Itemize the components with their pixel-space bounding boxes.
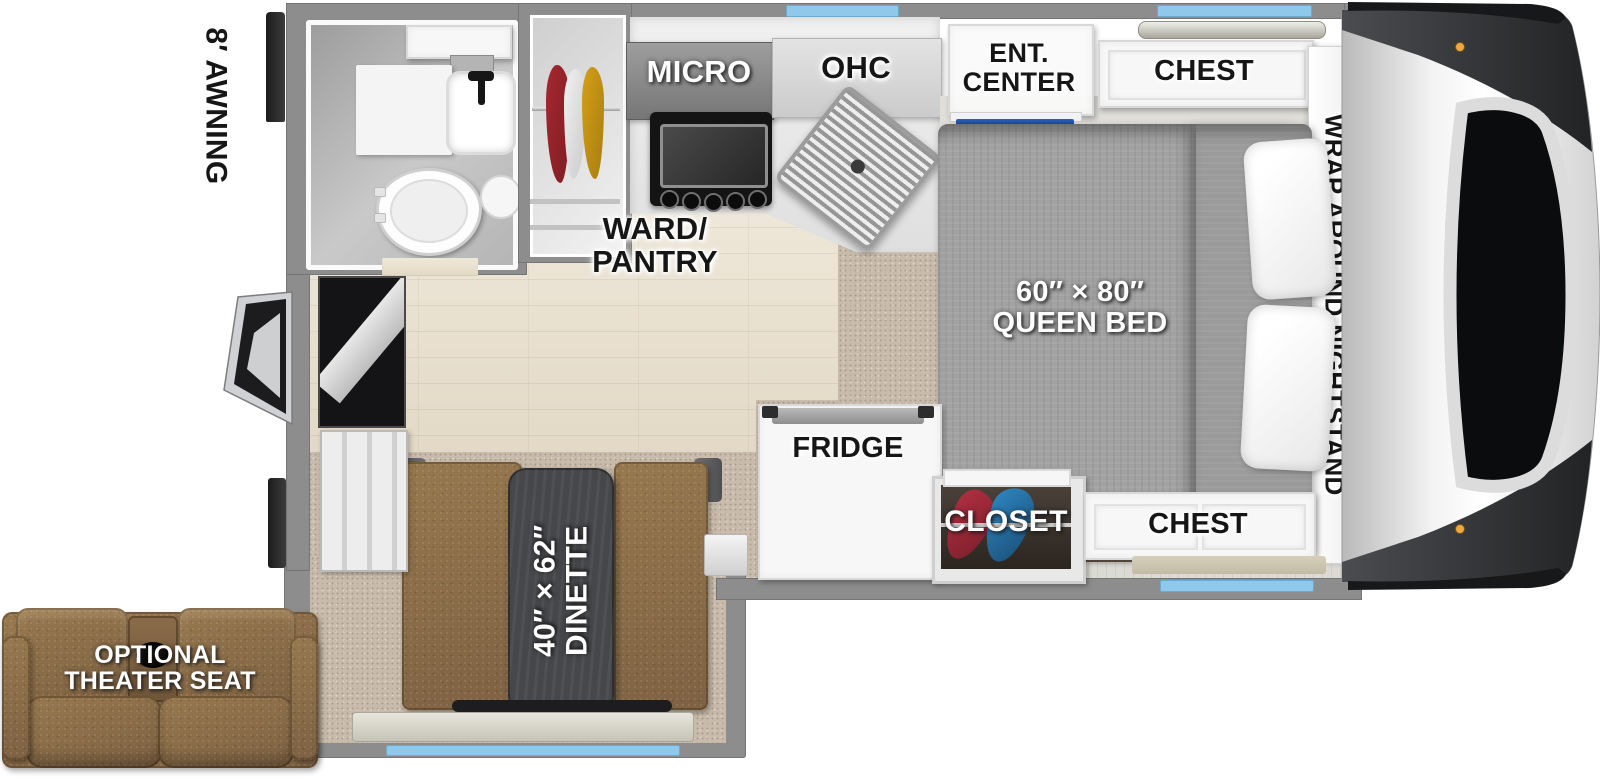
clearance-light-icon — [1456, 43, 1465, 52]
stove-knob-icon — [748, 190, 767, 209]
ent-center-label: ENT. CENTER — [944, 28, 1094, 108]
entry-door-panel — [320, 430, 408, 572]
micro-label-text: MICRO — [647, 56, 752, 89]
bed-pillow — [1243, 137, 1338, 300]
closet-label-text: CLOSET — [944, 506, 1067, 538]
ward-pantry-line1: WARD/ — [592, 213, 718, 246]
dinette-label-size: 40″ × 62″ — [529, 525, 561, 657]
awning-label-text: 8′ AWNING — [200, 27, 232, 184]
fridge-label: FRIDGE — [758, 428, 938, 468]
sink-drain-icon — [848, 157, 868, 177]
toilet-hinge — [374, 187, 386, 197]
theater-seat: OPTIONAL THEATER SEAT — [2, 608, 318, 772]
queen-bed-label-name: QUEEN BED — [992, 308, 1167, 339]
theater-seat-label-line2: THEATER SEAT — [64, 668, 256, 695]
ohc-label: OHC — [772, 48, 940, 88]
dinette-entry-step — [352, 712, 694, 742]
oven-window — [660, 124, 768, 188]
entry-doorway — [318, 276, 406, 428]
queen-bed-label-size: 60″ × 80″ — [992, 277, 1167, 308]
fridge-hinge — [918, 406, 934, 418]
theater-seat-label-line1: OPTIONAL — [64, 642, 256, 669]
dinette-label-name: DINETTE — [561, 525, 593, 657]
toilet-paper-holder — [480, 175, 522, 219]
closet-label: CLOSET — [930, 500, 1082, 544]
awning-arm-top — [266, 12, 285, 122]
dinette-slide-window — [386, 745, 680, 756]
doorway-glare — [318, 276, 406, 403]
chest-top-label: CHEST — [1098, 48, 1310, 94]
micro-label: MICRO — [626, 52, 772, 92]
floor-mat — [1132, 556, 1326, 574]
entry-door-open — [215, 285, 305, 430]
bathroom — [286, 3, 527, 275]
dinette-bench-right — [614, 462, 708, 710]
dinette-table-edge — [452, 700, 672, 712]
ent-center-label-line1: ENT. — [963, 39, 1076, 68]
bathroom-door-opening — [382, 258, 478, 276]
grab-handle — [1138, 21, 1326, 39]
fridge-hinge — [762, 406, 778, 418]
fridge-vent — [772, 408, 924, 424]
awning-arm-bottom — [268, 478, 286, 568]
bathroom-counter — [356, 65, 452, 155]
toilet-seat-inner — [390, 179, 468, 243]
toilet-hinge — [374, 213, 386, 223]
queen-bed-label: 60″ × 80″ QUEEN BED — [960, 266, 1200, 350]
bathroom-medicine-cabinet — [406, 25, 512, 59]
fridge-label-text: FRIDGE — [792, 433, 903, 464]
entry-step-ledge — [704, 534, 748, 576]
dinette-bench-left — [402, 462, 522, 710]
chest-bottom-label-text: CHEST — [1148, 509, 1248, 540]
closet-lid — [943, 469, 1071, 487]
bed-pillow — [1240, 304, 1336, 472]
ohc-label-text: OHC — [821, 52, 891, 85]
floorplan-canvas: 8′ AWNING MICRO — [0, 0, 1600, 781]
window-bottom-bedroom — [1160, 580, 1314, 592]
window-top-galley — [786, 5, 899, 17]
ward-pantry-label: WARD/ PANTRY — [560, 200, 750, 292]
theater-seat-label: OPTIONAL THEATER SEAT — [10, 626, 310, 710]
bathroom-faucet-spout-icon — [478, 77, 485, 105]
truck-cap-front — [1330, 0, 1600, 600]
ent-center-label-line2: CENTER — [963, 68, 1076, 97]
awning-label: 8′ AWNING — [196, 16, 236, 196]
cooktop-oven — [650, 112, 772, 206]
clearance-light-icon — [1456, 525, 1465, 534]
dinette-label: 40″ × 62″ DINETTE — [508, 468, 614, 714]
chest-top-label-text: CHEST — [1154, 56, 1254, 87]
ward-pantry-line2: PANTRY — [592, 246, 718, 279]
chest-bottom-label: CHEST — [1084, 500, 1312, 548]
window-top-bedroom — [1157, 5, 1312, 17]
